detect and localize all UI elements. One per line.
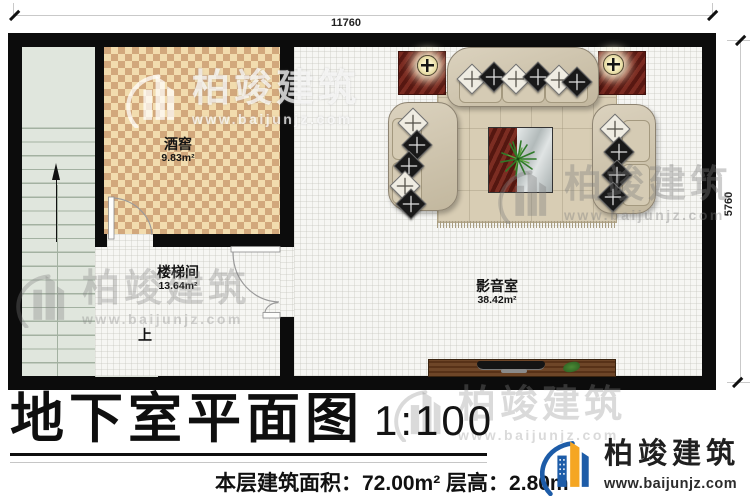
brand-url: www.baijunjz.com [604, 476, 737, 492]
room-name: 酒窖 [128, 136, 228, 152]
door-leaf [231, 247, 280, 253]
footer-stats: 本层建筑面积：72.00m² 层高：2.80m [215, 467, 569, 497]
brand-logo: 柏竣建筑 www.baijunjz.com [540, 432, 750, 500]
door-leaf [109, 197, 115, 239]
room-area: 38.42m² [447, 294, 547, 306]
title-underline [10, 453, 487, 456]
door-arc [265, 303, 278, 313]
scale-label: 1:100 [374, 400, 494, 442]
room-label-stairwell: 楼梯间 13.64m² [128, 264, 228, 292]
brand-logo-icon [540, 436, 598, 496]
plant-icon [501, 141, 536, 176]
room-area: 9.83m² [128, 152, 228, 164]
door-arc [114, 198, 152, 235]
room-label-wine-cellar: 酒窖 9.83m² [128, 136, 228, 164]
stairs-up-label: 上 [138, 325, 152, 345]
page-title: 地下室平面图 [10, 392, 364, 446]
brand-name: 柏竣建筑 [604, 440, 740, 469]
door-leaf [263, 313, 280, 319]
room-area: 13.64m² [128, 280, 228, 292]
room-name: 楼梯间 [128, 264, 228, 280]
title-underline-thin [10, 462, 487, 463]
room-name: 影音室 [447, 278, 547, 294]
floor-plan-page: 11760 5760 [0, 0, 750, 502]
door-arc [233, 252, 279, 302]
room-label-media: 影音室 38.42m² [447, 278, 547, 306]
